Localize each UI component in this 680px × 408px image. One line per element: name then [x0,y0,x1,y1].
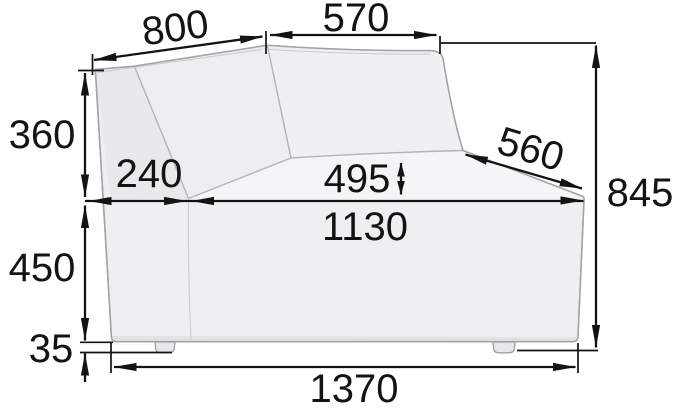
dim-base-height-label: 450 [9,246,76,290]
dim-overall-height-label: 845 [607,171,674,215]
foot-right [493,342,515,353]
dimension-drawing-page: 800 570 360 240 495 1130 450 35 1370 560… [0,0,680,408]
back-cushion-right [268,46,464,158]
dim-seat-width-label: 1130 [322,205,408,249]
dim-overall-width-label: 1370 [310,367,399,408]
arrowhead-foot-height-up [81,353,89,376]
dim-foot-height-label: 35 [29,327,74,371]
arrowhead-corner-depth-left [89,197,112,205]
dim-corner-depth-label: 240 [116,152,183,196]
dim-backrest-height-label: 360 [9,113,76,157]
foot-left [155,342,175,353]
sofa-dimension-drawing: 800 570 360 240 495 1130 450 35 1370 560… [0,0,680,408]
dim-seat-depth-label: 495 [324,157,391,201]
dim-back-right-width-label: 570 [323,0,390,40]
dim-back-left-width-label: 800 [139,2,211,54]
